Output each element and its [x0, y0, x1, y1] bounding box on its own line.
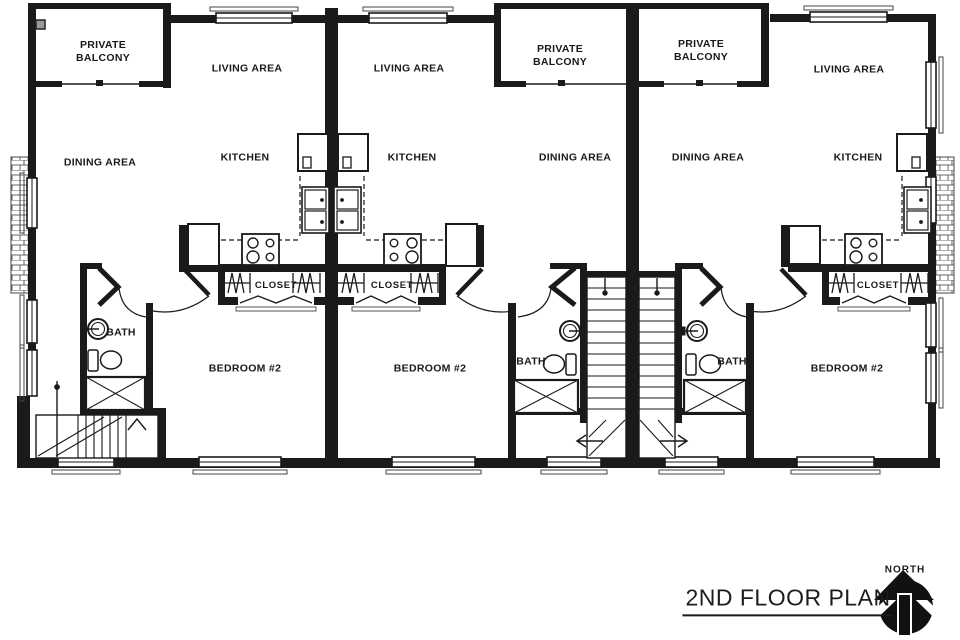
kitchen-sink-icon	[302, 187, 931, 233]
floor-plan-sheet: PRIVATE BALCONY LIVING AREA DINING AREA …	[0, 0, 960, 640]
column-marker	[36, 20, 45, 29]
plan-title: 2ND FLOOR PLAN	[682, 585, 893, 616]
counter-end-cabinet	[188, 224, 820, 266]
fridge-icon	[298, 134, 927, 171]
north-label: NORTH	[885, 565, 926, 576]
floor-plan-drawing	[0, 0, 960, 640]
